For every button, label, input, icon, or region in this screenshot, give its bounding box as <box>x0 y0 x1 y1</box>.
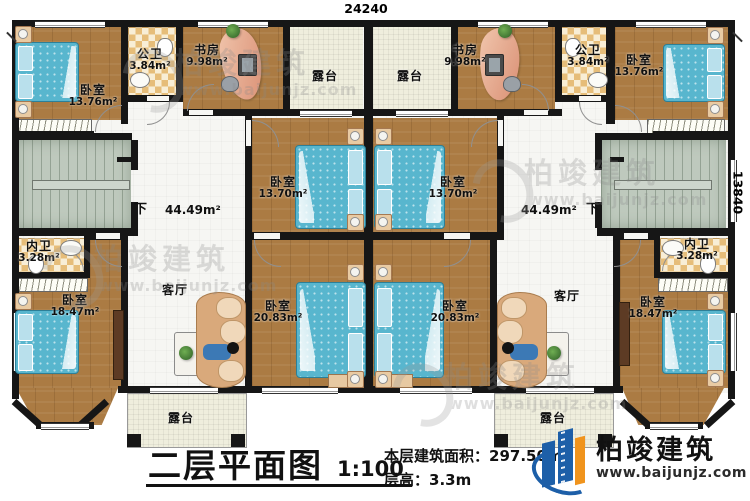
table-plant <box>547 346 561 360</box>
pillow <box>377 288 392 328</box>
sofa-cushion <box>216 297 242 319</box>
person-head <box>502 342 514 354</box>
window <box>730 313 737 371</box>
sliding-door <box>150 387 218 394</box>
window <box>478 21 548 28</box>
room-label: 露台 <box>523 412 583 425</box>
window <box>396 110 448 117</box>
nightstand <box>375 214 392 231</box>
room-label: 卧室20.83m² <box>420 300 490 325</box>
office-chair <box>503 76 521 92</box>
wall <box>283 20 290 115</box>
nightstand <box>347 371 364 388</box>
nightstand <box>707 293 724 310</box>
door-opening <box>579 96 601 101</box>
nightstand <box>375 264 392 281</box>
sofa-cushion <box>218 360 244 382</box>
logo-building-icon <box>536 428 590 490</box>
stairs-down-label: 下 <box>134 198 147 217</box>
wall <box>131 140 138 170</box>
door-opening <box>624 233 648 239</box>
pillow <box>707 75 722 99</box>
room-label: 卧室20.83m² <box>243 300 313 325</box>
pillow <box>377 333 392 373</box>
door-opening <box>96 233 120 239</box>
plant <box>498 24 512 38</box>
room-label: 卧室13.70m² <box>418 176 488 201</box>
sofa-cushion <box>497 320 523 344</box>
stairs-handrail <box>32 180 130 190</box>
room-label: 客厅 <box>537 290 597 303</box>
hall-area-label: 44.49m² <box>165 203 221 217</box>
pillow <box>348 150 363 185</box>
pillow <box>377 150 392 185</box>
pillow <box>348 333 363 373</box>
nightstand <box>347 214 364 231</box>
room-label: 内卫3.28m² <box>10 240 68 265</box>
logo-website: www.baijunjz.com <box>596 465 747 481</box>
nightstand <box>375 371 392 388</box>
stairs-handrail <box>614 180 712 190</box>
nightstand <box>707 27 724 44</box>
wall <box>595 140 602 170</box>
person-head <box>227 342 239 354</box>
person <box>510 344 538 360</box>
wardrobe <box>14 278 88 292</box>
dimension-right: 13840 <box>731 163 746 223</box>
bay-window <box>41 423 89 430</box>
room-label: 卧室13.76m² <box>604 54 674 79</box>
sliding-door <box>526 387 594 394</box>
door-opening <box>444 233 470 239</box>
room-label: 露台 <box>380 70 440 83</box>
door-opening <box>147 96 169 101</box>
page-title: 二层平面图 <box>148 449 323 482</box>
wall <box>364 232 504 240</box>
wall <box>654 272 735 278</box>
pillow <box>18 344 33 371</box>
nightstand <box>347 128 364 145</box>
pillow <box>708 314 723 341</box>
door-opening <box>254 233 280 239</box>
drawing-scale: 1:100 <box>337 457 404 482</box>
sofa-cushion <box>499 360 525 382</box>
room-label: 卧室18.47m² <box>618 296 688 321</box>
room-label: 露台 <box>295 70 355 83</box>
wall <box>12 133 132 140</box>
pillow <box>708 344 723 371</box>
stairs-down-label: 下 <box>586 198 599 217</box>
bed <box>374 282 444 378</box>
logo-company-name: 柏竣建筑 <box>596 437 747 465</box>
company-logo: 柏竣建筑 www.baijunjz.com <box>536 428 747 490</box>
hall-area-label: 44.49m² <box>521 203 577 217</box>
wardrobe <box>658 278 728 292</box>
nightstand <box>15 101 32 118</box>
stairs-direction-mark <box>610 157 624 162</box>
room-label: 书房9.98m² <box>436 44 494 69</box>
room-label: 客厅 <box>145 284 205 297</box>
plant <box>226 24 240 38</box>
room-label: 卧室13.76m² <box>58 84 128 109</box>
room-label: 内卫3.28m² <box>668 238 726 263</box>
tv-cabinet <box>113 310 124 380</box>
room-terrace-top-left <box>288 24 363 111</box>
table-plant <box>179 346 193 360</box>
dimension-top: 24240 <box>330 1 402 16</box>
title-block: 二层平面图 1:100 <box>146 449 412 487</box>
room-label: 卧室18.47m² <box>40 294 110 319</box>
nightstand <box>375 128 392 145</box>
pillow <box>18 46 33 71</box>
nightstand <box>707 101 724 118</box>
nightstand <box>15 26 32 43</box>
window <box>262 387 338 394</box>
wall <box>595 133 735 140</box>
bed <box>296 282 366 378</box>
door-opening <box>246 120 251 146</box>
terrace-post <box>127 434 141 447</box>
nightstand <box>15 293 32 310</box>
sofa-cushion <box>501 297 527 319</box>
nightstand <box>707 370 724 387</box>
pillow <box>18 74 33 99</box>
room-label: 露台 <box>151 412 211 425</box>
window <box>300 110 352 117</box>
room-label: 公卫3.84m² <box>122 48 178 73</box>
window <box>636 21 706 28</box>
pillow <box>18 314 33 341</box>
nightstand <box>347 264 364 281</box>
sink <box>130 72 150 88</box>
pillow <box>348 288 363 328</box>
room-label: 卧室13.70m² <box>248 176 318 201</box>
office-chair <box>221 76 239 92</box>
wall <box>12 272 90 278</box>
floor-plan-page: 24240 13840 <box>0 0 750 501</box>
window <box>35 21 105 28</box>
window <box>400 387 472 394</box>
room-label: 书房9.98m² <box>178 44 236 69</box>
bed <box>15 310 79 374</box>
door-opening <box>498 120 503 146</box>
bay-window-wall <box>728 386 735 399</box>
pillow <box>707 48 722 72</box>
stairs-direction-mark <box>117 157 131 162</box>
bay-window-wall <box>12 386 19 399</box>
computer-monitor <box>238 54 257 76</box>
wall <box>490 238 497 388</box>
